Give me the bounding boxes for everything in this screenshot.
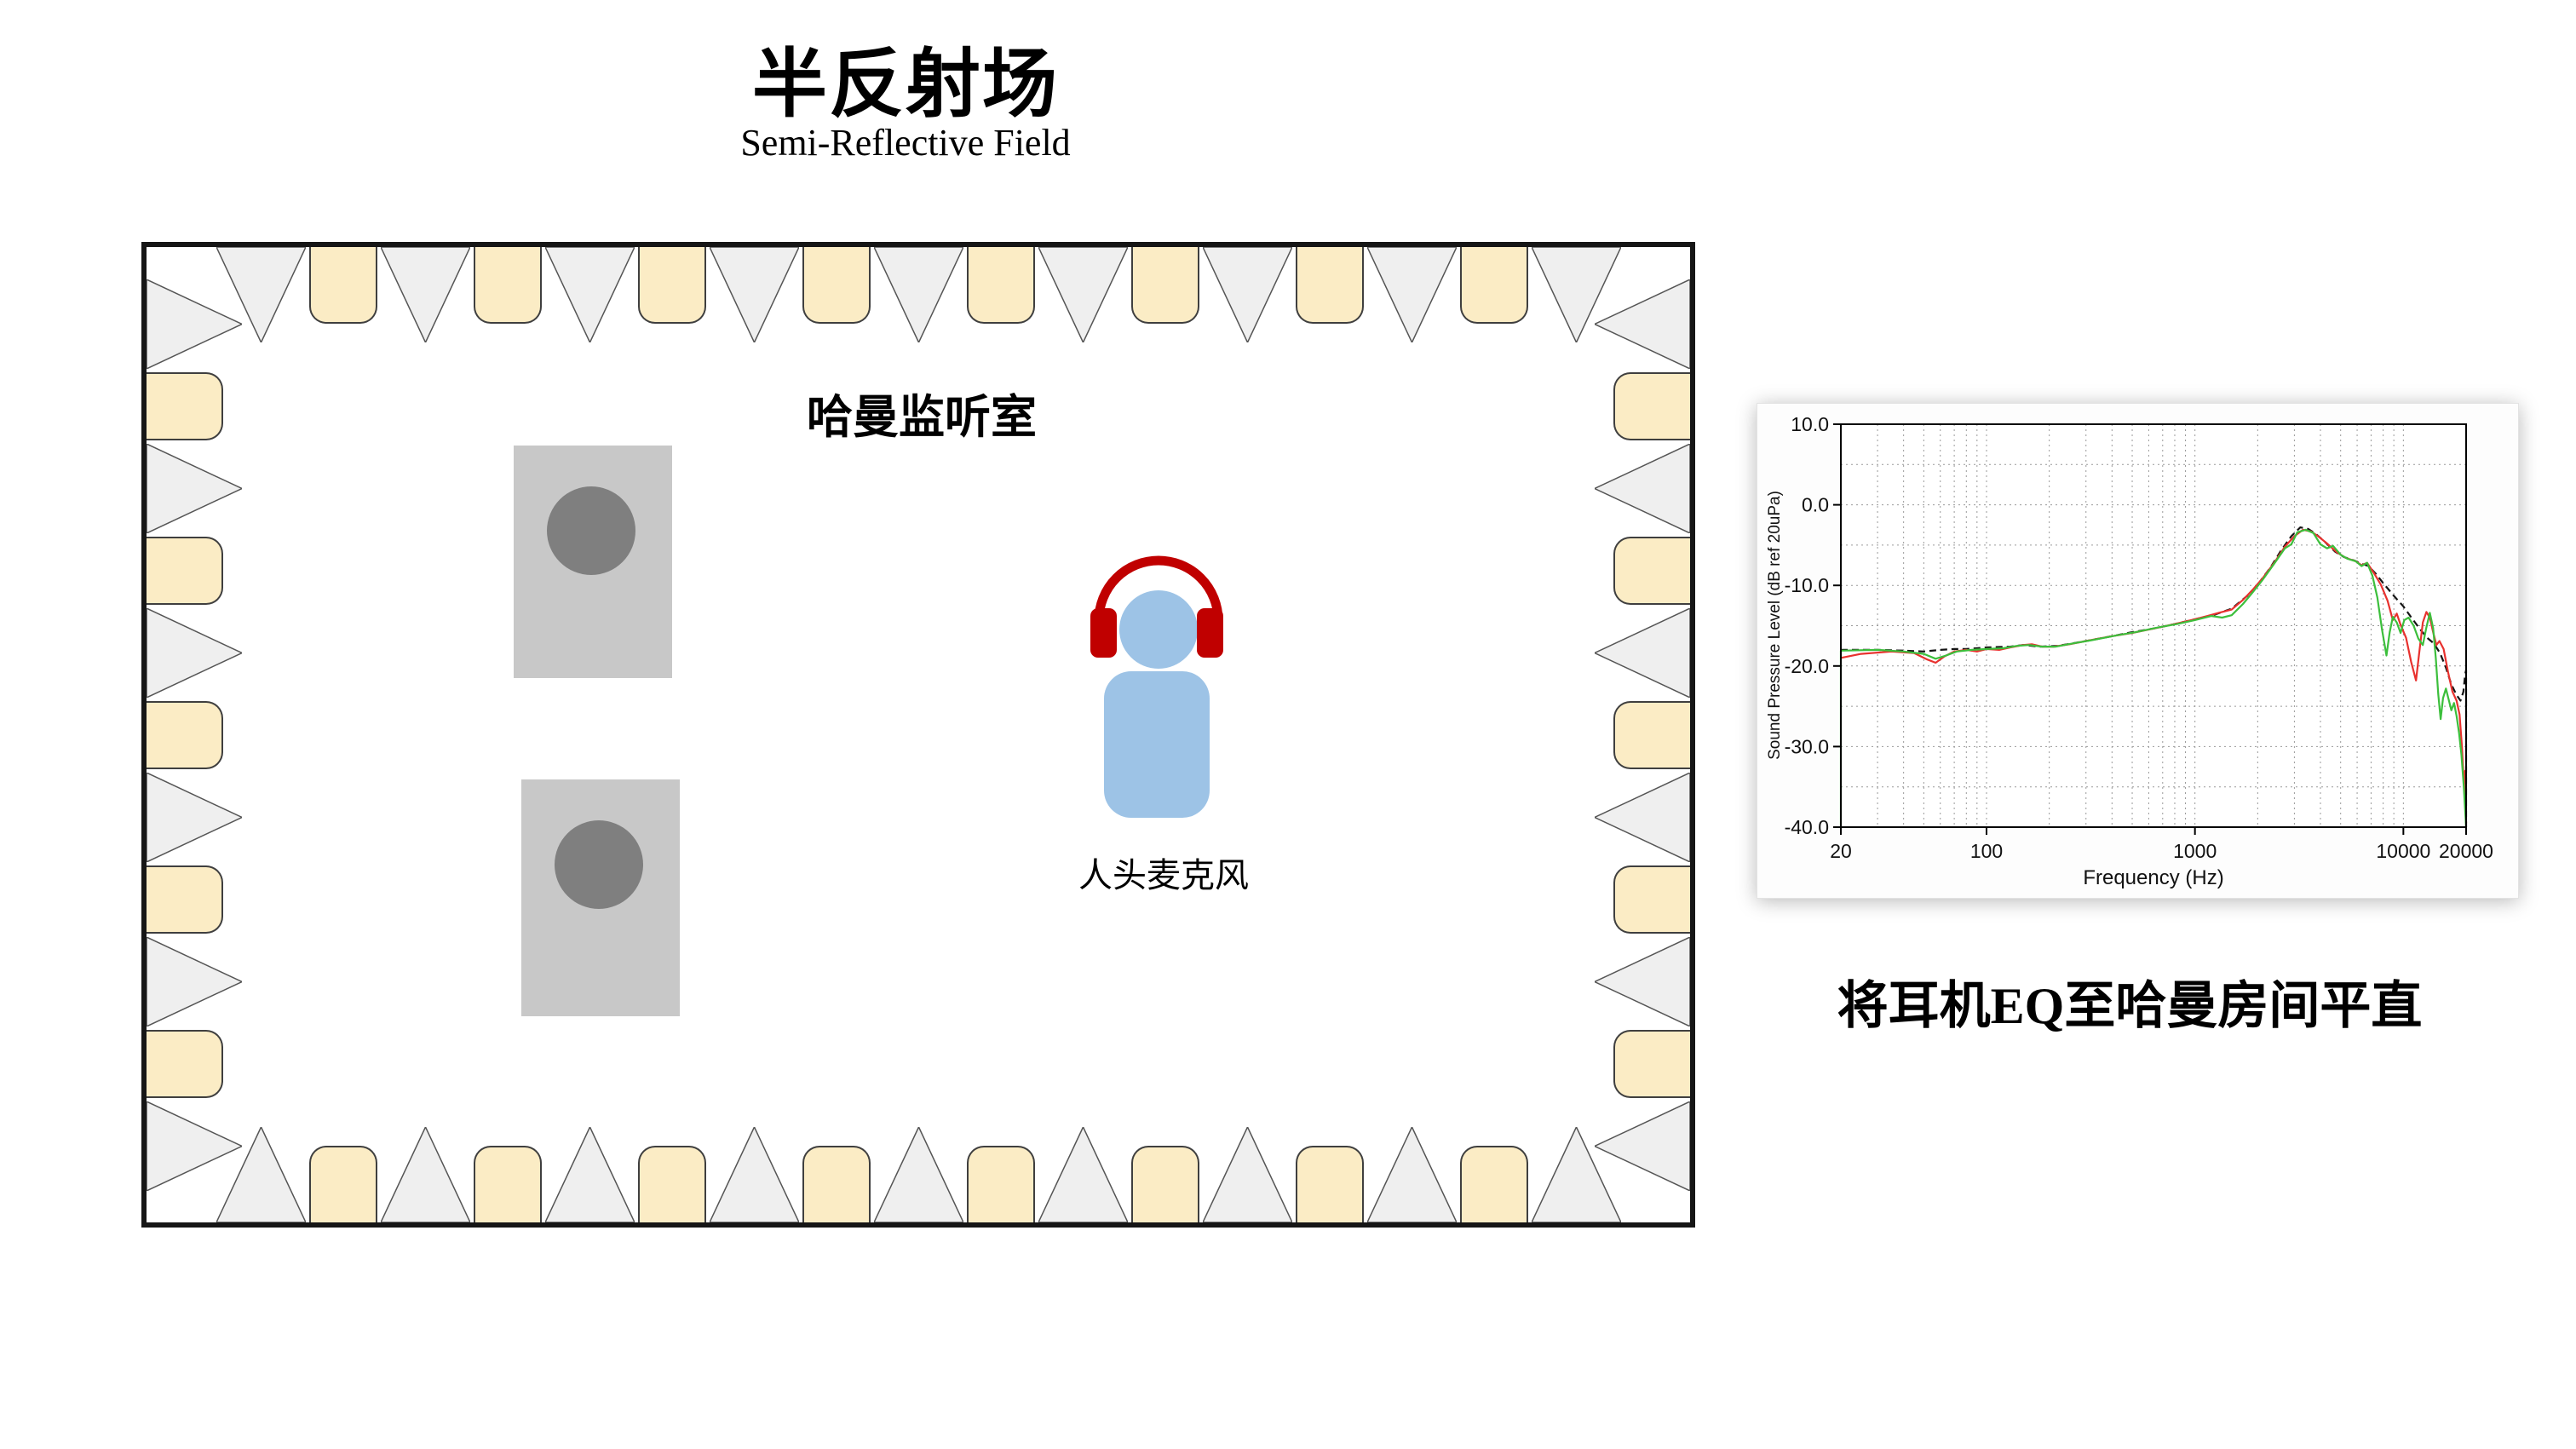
y-tick-label: -10.0 [1785,574,1829,596]
acoustic-wedge-icon [1038,1127,1128,1222]
acoustic-wedge-icon [381,1127,470,1222]
absorber-panel [147,865,223,934]
acoustic-wedge-icon [1595,444,1690,533]
absorber-panel [147,701,223,769]
absorber-panel [638,247,706,324]
x-tick-label: 1000 [2173,840,2217,862]
acoustic-wedge-icon [1038,247,1128,342]
absorber-panel [1460,1146,1528,1222]
page-title: 半反射场 [565,24,1246,132]
absorber-panel [474,1146,542,1222]
headphone-earcup-right-icon [1197,608,1223,658]
absorber-panel [1613,865,1690,934]
dummy-head-mic-label: 人头麦克风 [1027,848,1300,897]
acoustic-wedge-icon [1367,1127,1457,1222]
absorber-panel [309,247,377,324]
absorber-panel [147,537,223,605]
acoustic-wedge-icon [147,608,242,698]
acoustic-wedge-icon [874,1127,963,1222]
room-wall-bottom [147,1124,1690,1222]
body-icon [1104,671,1210,818]
absorber-panel [1131,247,1199,324]
absorber-panel [1613,372,1690,440]
absorber-panel [1613,1030,1690,1098]
acoustic-wedge-icon [147,444,242,533]
absorber-panel [1613,537,1690,605]
acoustic-wedge-icon [1367,247,1457,342]
speaker-cone-icon [555,820,643,909]
acoustic-wedge-icon [874,247,963,342]
y-tick-label: 0.0 [1802,494,1829,516]
absorber-panel [309,1146,377,1222]
y-tick-label: -20.0 [1785,655,1829,677]
absorber-panel [1296,247,1364,324]
absorber-panel [1131,1146,1199,1222]
acoustic-wedge-icon [381,247,470,342]
chart-caption: 将耳机EQ至哈曼房间平直 [1831,964,2428,1038]
acoustic-wedge-icon [1595,608,1690,698]
acoustic-wedge-icon [147,279,242,369]
x-tick-label: 20000 [2439,840,2493,862]
acoustic-wedge-icon [147,773,242,862]
room-wall-top [147,247,1690,345]
y-tick-label: -30.0 [1785,735,1829,757]
acoustic-wedge-icon [710,1127,799,1222]
chart-svg: 10.00.0-10.0-20.0-30.0-40.02010010001000… [1757,404,2518,898]
absorber-panel [802,247,871,324]
acoustic-wedge-icon [1595,279,1690,369]
acoustic-wedge-icon [147,937,242,1026]
acoustic-wedge-icon [1203,1127,1292,1222]
room-wall-left [147,247,244,1222]
absorber-panel [967,247,1035,324]
chart-y-axis-label: Sound Pressure Level (dB ref 20uPa) [1766,491,1784,760]
page-subtitle: Semi-Reflective Field [565,121,1246,164]
frequency-response-chart: 10.00.0-10.0-20.0-30.0-40.02010010001000… [1757,403,2519,899]
acoustic-wedge-icon [1595,1101,1690,1191]
acoustic-wedge-icon [545,1127,635,1222]
loudspeaker-2 [521,779,680,1016]
speaker-cone-icon [547,486,635,575]
room-wall-right [1592,247,1690,1222]
absorber-panel [147,1030,223,1098]
acoustic-wedge-icon [1595,773,1690,862]
dummy-head-with-headphones-icon [1061,533,1266,831]
y-tick-label: 10.0 [1791,413,1829,435]
x-tick-label: 20 [1830,840,1852,862]
absorber-panel [474,247,542,324]
absorber-panel [638,1146,706,1222]
x-tick-label: 100 [1970,840,2003,862]
absorber-panel [1613,701,1690,769]
head-icon [1119,590,1198,669]
acoustic-wedge-icon [1203,247,1292,342]
loudspeaker-1 [514,446,672,678]
chart-x-axis-label: Frequency (Hz) [2083,866,2223,889]
absorber-panel [967,1146,1035,1222]
acoustic-wedge-icon [147,1101,242,1191]
y-tick-label: -40.0 [1785,816,1829,838]
headphone-earcup-left-icon [1090,608,1117,658]
absorber-panel [802,1146,871,1222]
slide-canvas: 半反射场 Semi-Reflective Field 哈曼监听室 人头麦克风 1… [0,0,2576,1449]
acoustic-wedge-icon [1595,937,1690,1026]
acoustic-wedge-icon [545,247,635,342]
absorber-panel [147,372,223,440]
acoustic-wedge-icon [710,247,799,342]
listening-room-diagram: 哈曼监听室 人头麦克风 [141,242,1695,1228]
absorber-panel [1296,1146,1364,1222]
absorber-panel [1460,247,1528,324]
room-label: 哈曼监听室 [692,379,1152,446]
x-tick-label: 10000 [2376,840,2430,862]
